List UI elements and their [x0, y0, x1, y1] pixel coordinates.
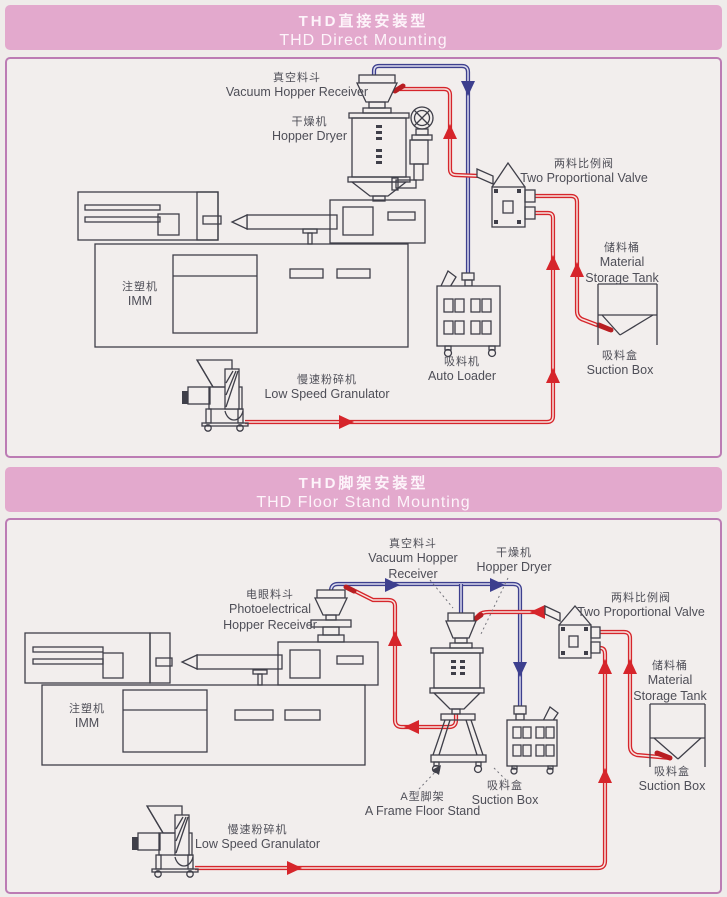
vacuum-hopper-receiver — [446, 613, 476, 648]
arrow-right-red — [287, 861, 302, 875]
arrow-left-red — [404, 720, 419, 734]
label-hopper-dryer: 干燥机 Hopper Dryer — [454, 547, 574, 576]
arrow-up-red — [388, 631, 402, 646]
suction-box-unit — [507, 706, 558, 774]
label-leader-lines — [419, 578, 508, 789]
dryer-blower — [392, 107, 433, 190]
tank-suction-nozzle — [599, 325, 611, 330]
arrow-right-blue — [490, 578, 505, 592]
label-low-speed-granulator: 慢速粉碎机 Low Speed Granulator — [170, 824, 345, 853]
label-photoelectrical-hopper-receiver: 电眼料斗 Photoelectrical Hopper Receiver — [202, 589, 338, 633]
header-title-en: THD Direct Mounting — [5, 32, 722, 50]
arrow-up-red — [443, 124, 457, 139]
pipe-red-valve-to-vacuum-receiver — [474, 605, 547, 620]
header-direct-mounting: THD直接安装型 THD Direct Mounting — [5, 5, 722, 50]
arrow-up-red — [546, 368, 560, 383]
label-two-proportional-valve: 两料比例阀 Two Proportional Valve — [500, 158, 668, 187]
auto-loader — [437, 271, 500, 357]
arrow-up-red — [598, 768, 612, 783]
arrow-down-blue — [461, 81, 475, 96]
label-material-storage-tank: 储料桶 Material Storage Tank — [562, 242, 682, 286]
a-frame-floor-stand — [431, 714, 486, 773]
label-a-frame-floor-stand: A型脚架 A Frame Floor Stand — [335, 791, 510, 820]
arrow-down-blue — [513, 662, 527, 677]
label-vacuum-hopper-receiver: 真空料斗 Vacuum Hopper Receiver — [222, 72, 372, 101]
catalog-page: THD直接安装型 THD Direct Mounting — [0, 0, 727, 897]
label-imm: 注塑机 IMM — [90, 281, 190, 310]
label-low-speed-granulator: 慢速粉碎机 Low Speed Granulator — [242, 374, 412, 403]
header-title-cn: THD脚架安装型 — [5, 472, 722, 493]
arrow-left-red — [530, 605, 545, 619]
diagram-floor-stand-mounting: 真空料斗 Vacuum Hopper Receiver 干燥机 Hopper D… — [5, 518, 722, 894]
label-material-storage-tank: 储料桶 Material Storage Tank — [610, 660, 727, 704]
material-storage-tank — [598, 284, 657, 345]
label-suction-box: 吸料盒 Suction Box — [560, 350, 680, 379]
injection-molding-machine — [78, 192, 425, 347]
label-imm: 注塑机 IMM — [37, 703, 137, 732]
label-auto-loader: 吸料机 Auto Loader — [402, 356, 522, 385]
header-title-cn: THD直接安装型 — [5, 10, 722, 31]
label-hopper-dryer: 干燥机 Hopper Dryer — [247, 116, 372, 145]
header-floor-stand-mounting: THD脚架安装型 THD Floor Stand Mounting — [5, 467, 722, 512]
hopper-dryer — [430, 648, 484, 714]
low-speed-granulator — [182, 360, 248, 431]
injection-molding-machine — [25, 633, 378, 765]
label-suction-box-tank: 吸料盒 Suction Box — [612, 766, 727, 795]
receiver-inlet-nozzle — [474, 615, 481, 620]
arrow-right-red — [339, 415, 354, 429]
arrow-up-red — [546, 255, 560, 270]
receiver-inlet-nozzle — [346, 587, 354, 591]
header-title-en: THD Floor Stand Mounting — [5, 494, 722, 512]
diagram-direct-mounting: 真空料斗 Vacuum Hopper Receiver 干燥机 Hopper D… — [5, 57, 722, 458]
label-two-proportional-valve: 两料比例阀 Two Proportional Valve — [557, 592, 725, 621]
